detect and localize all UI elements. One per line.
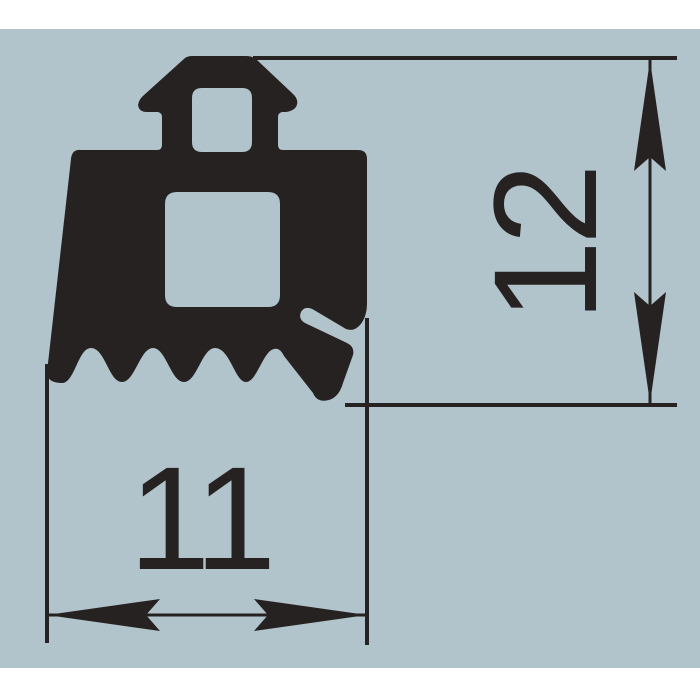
- dimension-height-value: 12: [464, 168, 628, 322]
- technical-drawing-canvas: 11 12: [0, 0, 700, 700]
- drawing-page: 11 12: [0, 0, 700, 700]
- dimension-width-value: 11: [129, 437, 272, 601]
